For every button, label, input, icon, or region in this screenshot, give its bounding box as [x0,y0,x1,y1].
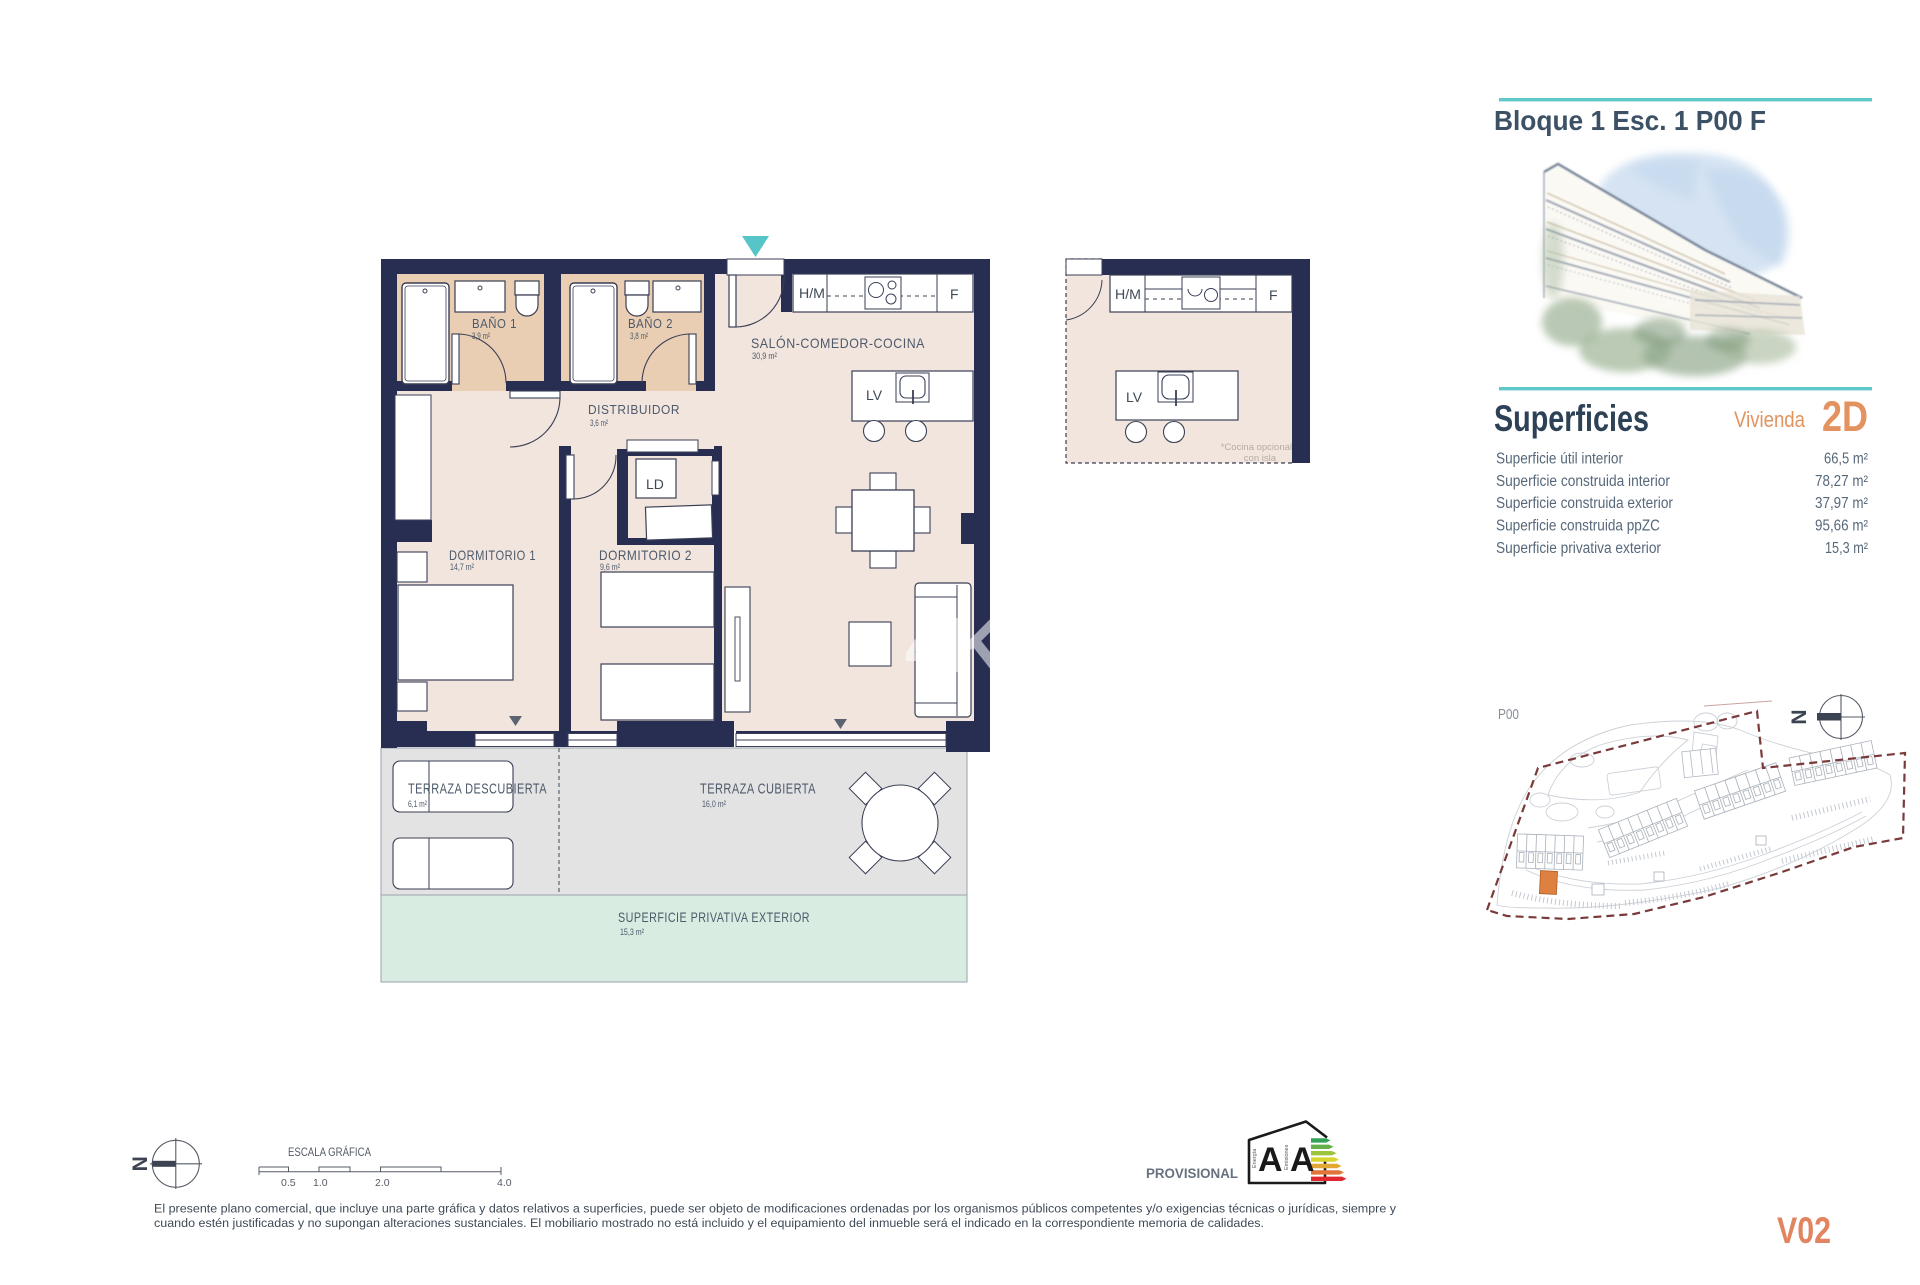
svg-text:Vivienda: Vivienda [1734,407,1806,432]
svg-text:6,1 m²: 6,1 m² [408,799,427,810]
svg-text:P00: P00 [1498,706,1519,723]
svg-text:*Cocina opcional: *Cocina opcional [1221,442,1292,453]
svg-text:30,9 m²: 30,9 m² [752,351,777,362]
svg-text:LD: LD [646,476,664,492]
svg-text:H/M: H/M [799,285,825,301]
svg-text:H/M: H/M [1115,286,1141,302]
svg-text:Superficie construida exterior: Superficie construida exterior [1496,495,1673,512]
svg-text:2D: 2D [1822,393,1868,441]
svg-text:DORMITORIO 1: DORMITORIO 1 [449,547,536,563]
svg-text:DORMITORIO 2: DORMITORIO 2 [599,547,692,563]
svg-text:Emisiones: Emisiones [1284,1144,1290,1170]
svg-text:Bloque 1 Esc. 1 P00 F: Bloque 1 Esc. 1 P00 F [1494,105,1766,136]
svg-text:3,8 m²: 3,8 m² [630,331,648,342]
svg-text:Superficie privativa exterior: Superficie privativa exterior [1496,540,1661,557]
svg-text:16,0 m²: 16,0 m² [702,799,726,810]
svg-text:1.0: 1.0 [313,1177,328,1189]
svg-text:V02: V02 [1777,1210,1831,1251]
svg-text:A: A [1290,1141,1315,1179]
svg-text:78,27 m²: 78,27 m² [1815,473,1868,490]
svg-text:9,6 m²: 9,6 m² [600,562,620,573]
svg-text:66,5 m²: 66,5 m² [1824,450,1868,467]
svg-text:F: F [950,286,959,302]
svg-text:0.5: 0.5 [281,1177,296,1189]
svg-text:PROVISIONAL: PROVISIONAL [1146,1166,1238,1181]
svg-text:2.0: 2.0 [375,1177,390,1189]
svg-text:ESCALA GRÁFICA: ESCALA GRÁFICA [288,1144,371,1159]
svg-text:3,6 m²: 3,6 m² [590,418,608,429]
svg-text:con isla: con isla [1244,453,1277,464]
svg-text:3,9 m²: 3,9 m² [472,331,490,342]
svg-text:LV: LV [1126,389,1143,405]
svg-text:15,3 m²: 15,3 m² [1825,540,1868,557]
svg-text:BAÑO 2: BAÑO 2 [628,316,673,331]
svg-text:N: N [1788,709,1811,724]
svg-text:cuando estén justificadas y no: cuando estén justificadas y no supongan … [154,1216,1264,1230]
svg-text:14,7 m²: 14,7 m² [450,562,474,573]
svg-text:LV: LV [866,387,883,403]
svg-text:SUPERFICIE PRIVATIVA EXTERIOR: SUPERFICIE PRIVATIVA EXTERIOR [618,909,810,925]
svg-text:DISTRIBUIDOR: DISTRIBUIDOR [588,402,680,417]
svg-text:Superficie construida interior: Superficie construida interior [1496,473,1670,490]
svg-text:37,97 m²: 37,97 m² [1815,495,1868,512]
svg-text:4K: 4K [905,601,1009,689]
svg-text:El presente plano comercial, q: El presente plano comercial, que incluye… [154,1202,1397,1216]
svg-text:SALÓN-COMEDOR-COCINA: SALÓN-COMEDOR-COCINA [751,335,925,351]
svg-text:95,66 m²: 95,66 m² [1815,518,1868,535]
svg-text:F: F [1269,287,1278,303]
svg-text:15,3 m²: 15,3 m² [620,927,644,938]
svg-text:Superficie construida ppZC: Superficie construida ppZC [1496,518,1660,535]
svg-text:Superficies: Superficies [1494,398,1649,439]
svg-text:A: A [1258,1141,1283,1179]
svg-text:N: N [129,1156,152,1171]
svg-text:Superficie útil interior: Superficie útil interior [1496,450,1623,467]
svg-text:BAÑO 1: BAÑO 1 [472,316,517,331]
svg-text:Energía: Energía [1252,1148,1258,1168]
svg-text:TERRAZA DESCUBIERTA: TERRAZA DESCUBIERTA [408,782,547,798]
svg-text:4.0: 4.0 [497,1177,512,1189]
svg-text:TERRAZA CUBIERTA: TERRAZA CUBIERTA [700,782,816,798]
